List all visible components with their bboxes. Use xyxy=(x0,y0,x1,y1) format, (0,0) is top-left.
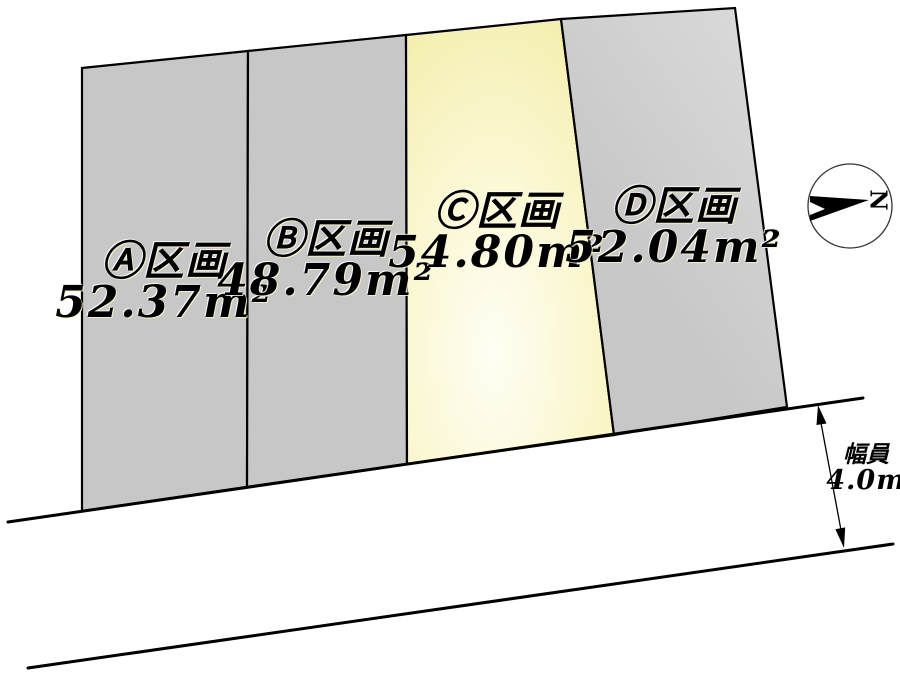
plot-map-drawing xyxy=(0,0,900,675)
north-letter: N xyxy=(867,189,890,210)
dimension-arrowhead-bottom xyxy=(835,527,845,548)
dimension-arrowhead-top xyxy=(817,405,827,425)
land-plot-diagram: Ⓐ区画 52.37m² Ⓑ区画 48.79m² Ⓒ区画 54.80m² Ⓓ区画 … xyxy=(0,0,900,675)
road-width-label: 幅員 4.0m xyxy=(826,442,900,494)
plot-d-area: 52.04m² xyxy=(565,227,783,269)
plot-d-name: Ⓓ区画 xyxy=(565,185,783,227)
road-lower-edge-line xyxy=(28,544,893,668)
road-width-value: 4.0m xyxy=(826,468,900,494)
plot-d-label: Ⓓ区画 52.04m² xyxy=(565,185,783,269)
